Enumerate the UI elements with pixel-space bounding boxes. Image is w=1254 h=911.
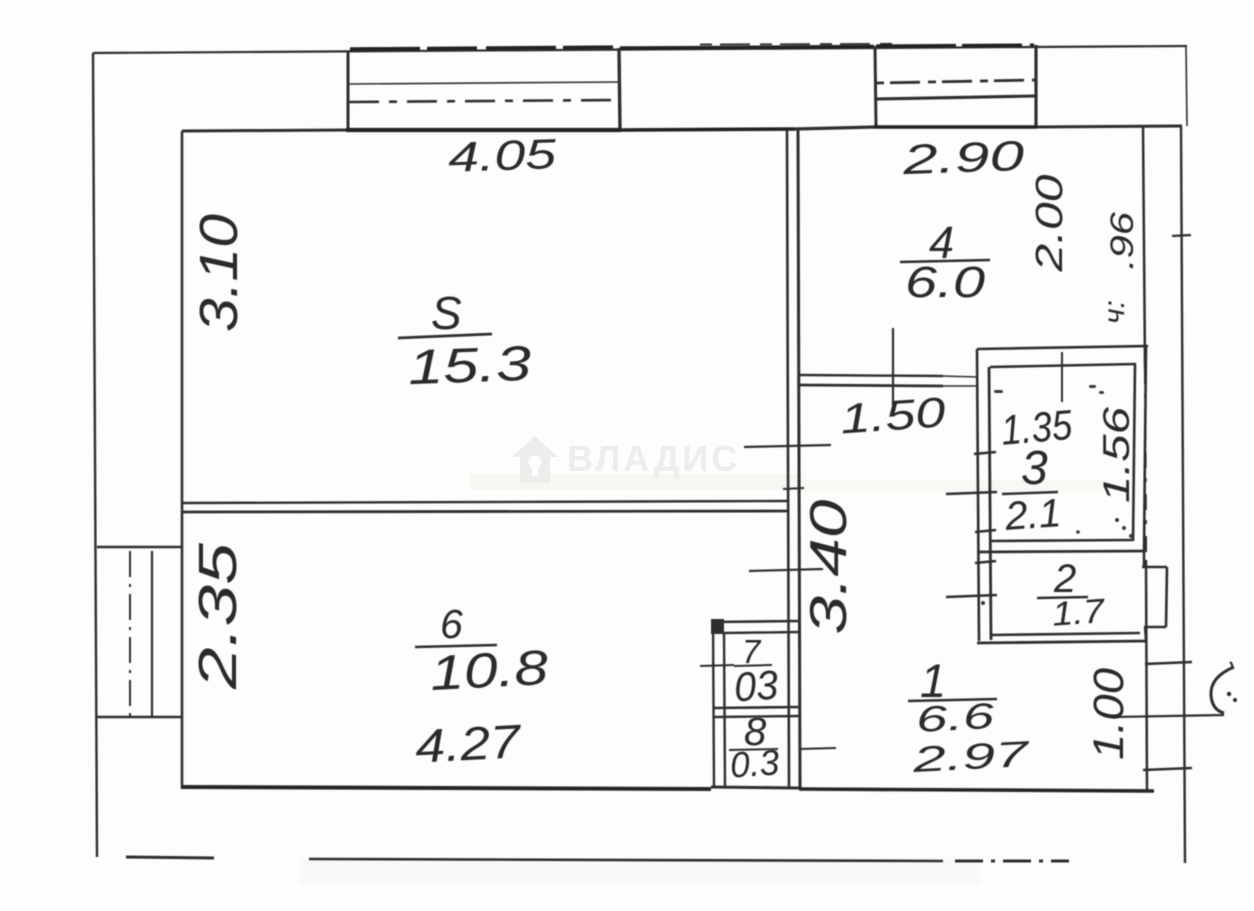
svg-text:ВЛАДИС: ВЛАДИС: [567, 438, 740, 479]
svg-text:2.00: 2.00: [1029, 175, 1071, 273]
svg-text:2.1: 2.1: [1003, 491, 1063, 539]
svg-text:2.97: 2.97: [910, 733, 1032, 780]
svg-text:4.27: 4.27: [414, 714, 524, 773]
svg-text:1.50: 1.50: [839, 388, 948, 442]
svg-text:3.40: 3.40: [800, 499, 858, 634]
svg-text:03: 03: [733, 662, 780, 711]
svg-text:1.7: 1.7: [1051, 592, 1107, 634]
svg-text:1.56: 1.56: [1096, 406, 1137, 503]
svg-text:2.90: 2.90: [901, 132, 1026, 183]
svg-text:1.00: 1.00: [1085, 668, 1133, 760]
svg-text:4.05: 4.05: [447, 130, 557, 181]
svg-text:S: S: [431, 287, 462, 339]
svg-text:6.6: 6.6: [915, 695, 997, 740]
svg-text:6: 6: [440, 601, 463, 647]
svg-text:.96: .96: [1104, 212, 1140, 270]
svg-text:15.3: 15.3: [407, 337, 532, 395]
svg-text:6.0: 6.0: [905, 258, 986, 307]
svg-text:3: 3: [1021, 442, 1048, 495]
svg-text:ч:: ч:: [1098, 300, 1131, 324]
svg-text:0.3: 0.3: [729, 741, 781, 785]
svg-text:3.10: 3.10: [189, 214, 249, 332]
svg-text:10.8: 10.8: [429, 641, 550, 701]
svg-text:2.35: 2.35: [188, 542, 248, 691]
